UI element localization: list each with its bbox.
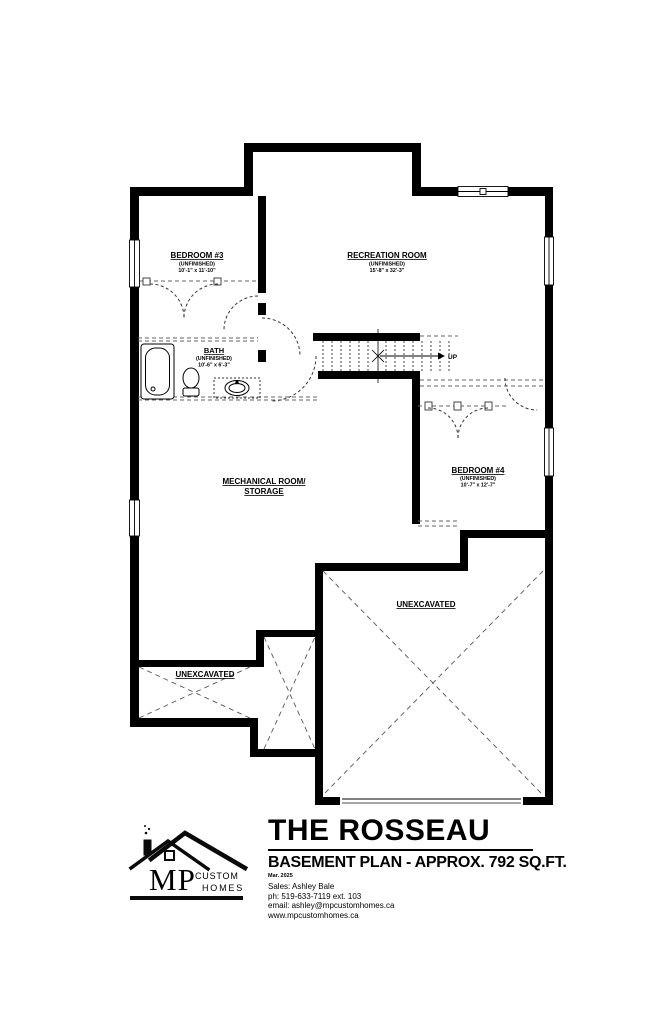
- garage-door-icon: [340, 796, 523, 806]
- logo-smoke: [144, 825, 146, 827]
- bath-status: (UNFINISHED): [196, 356, 232, 362]
- bedroom4-label: BEDROOM #4: [452, 466, 505, 475]
- plan-date: Mar. 2025: [268, 873, 533, 879]
- phone-contact: ph: 519-633-7119 ext. 103: [268, 892, 533, 902]
- floorplan-page: UP: [0, 0, 663, 1024]
- logo-word-custom: CUSTOM: [195, 871, 239, 881]
- wall-mech-bottom: [133, 660, 263, 667]
- room-labels: BEDROOM #3 (UNFINISHED) 10'-1" x 11'-10"…: [171, 251, 505, 679]
- wall-bath-pier-1: [258, 303, 266, 315]
- basement-floor-plan: UP: [0, 0, 663, 812]
- wall-bottom-left: [130, 718, 258, 727]
- hall-door-arc: [271, 356, 316, 401]
- bath-label: BATH: [204, 346, 224, 355]
- bathtub-icon: [141, 344, 174, 399]
- window-icon: [545, 428, 554, 476]
- recreation-status: (UNFINISHED): [369, 262, 405, 268]
- toilet-icon: [183, 368, 199, 396]
- window-icon: [545, 237, 554, 285]
- unexcavated-garage-label: UNEXCAVATED: [396, 600, 455, 609]
- sales-contact: Sales: Ashley Bale: [268, 882, 533, 892]
- unexcavated-cross-lines: [139, 571, 543, 795]
- wall-notch-bottom: [250, 749, 323, 757]
- bed3-closet-door-arc: [184, 284, 218, 318]
- title-block: MP CUSTOM HOMES THE ROSSEAU BASEMENT PLA…: [0, 812, 663, 1024]
- bedroom3-status: (UNFINISHED): [179, 262, 215, 268]
- bedroom4-status: (UNFINISHED): [460, 476, 496, 482]
- bed4-entry-door-arc: [505, 378, 537, 410]
- sink-vanity-icon: [214, 378, 260, 398]
- contact-info: Sales: Ashley Bale ph: 519-633-7119 ext.…: [268, 882, 533, 920]
- wall-stairs-bottom: [318, 371, 420, 379]
- bed3-closet-door-arc: [150, 284, 184, 318]
- wall-mech-step-horiz: [256, 630, 319, 637]
- recreation-dims: 15'-8" x 32'-3": [370, 268, 405, 274]
- bed4-closet-door-arc: [458, 408, 488, 438]
- unexcavated-left-label: UNEXCAVATED: [175, 670, 234, 679]
- window-icon: [130, 500, 140, 536]
- bedroom3-label: BEDROOM #3: [171, 251, 224, 260]
- wall-step-horiz: [460, 530, 545, 538]
- logo-smoke: [145, 832, 148, 835]
- recreation-label: RECREATION ROOM: [347, 251, 427, 260]
- wall-top-left: [130, 187, 253, 196]
- wall-bump-top: [244, 143, 421, 152]
- wall-stairs-top: [313, 333, 420, 341]
- wall-bath-pier-2: [258, 350, 266, 362]
- wall-garage-left: [315, 563, 323, 805]
- window-icon: [130, 240, 140, 287]
- plan-title: THE ROSSEAU: [268, 814, 533, 851]
- title-text-group: THE ROSSEAU BASEMENT PLAN - APPROX. 792 …: [268, 814, 533, 920]
- email-contact: email: ashley@mpcustomhomes.ca: [268, 901, 533, 911]
- up-arrow-icon: [372, 350, 445, 362]
- bath-fixtures: [141, 344, 260, 399]
- mp-custom-homes-logo: MP CUSTOM HOMES: [123, 820, 248, 912]
- website-link: www.mpcustomhomes.ca: [268, 911, 533, 921]
- logo-monogram: MP: [149, 862, 196, 897]
- bath-dims: 10'-6" x 6'-3": [198, 363, 230, 369]
- logo-smoke: [148, 828, 150, 830]
- bedroom4-dims: 10'-7" x 12'-7": [461, 483, 496, 489]
- up-label: UP: [448, 354, 458, 361]
- wall-garage-top: [315, 563, 468, 571]
- bed4-closet-door-arc: [428, 408, 458, 438]
- wall-bed3-partition: [258, 196, 266, 293]
- bedroom3-dims: 10'-1" x 11'-10": [178, 268, 216, 274]
- logo-word-homes: HOMES: [202, 883, 244, 893]
- wall-below-stairs: [412, 371, 420, 524]
- logo-window: [165, 851, 174, 860]
- bed3-entry-door-arc: [224, 296, 258, 330]
- bath-door-arc: [262, 318, 300, 356]
- logo-chimney: [144, 840, 151, 855]
- window-icon: [458, 187, 508, 197]
- mechanical-label-line1: MECHANICAL ROOM/: [223, 477, 307, 486]
- mechanical-label-line2: STORAGE: [244, 487, 284, 496]
- logo-underline-bar: [130, 896, 243, 900]
- plan-subtitle: BASEMENT PLAN - APPROX. 792 SQ.FT.: [268, 854, 533, 872]
- dashed-partitions: [138, 281, 543, 526]
